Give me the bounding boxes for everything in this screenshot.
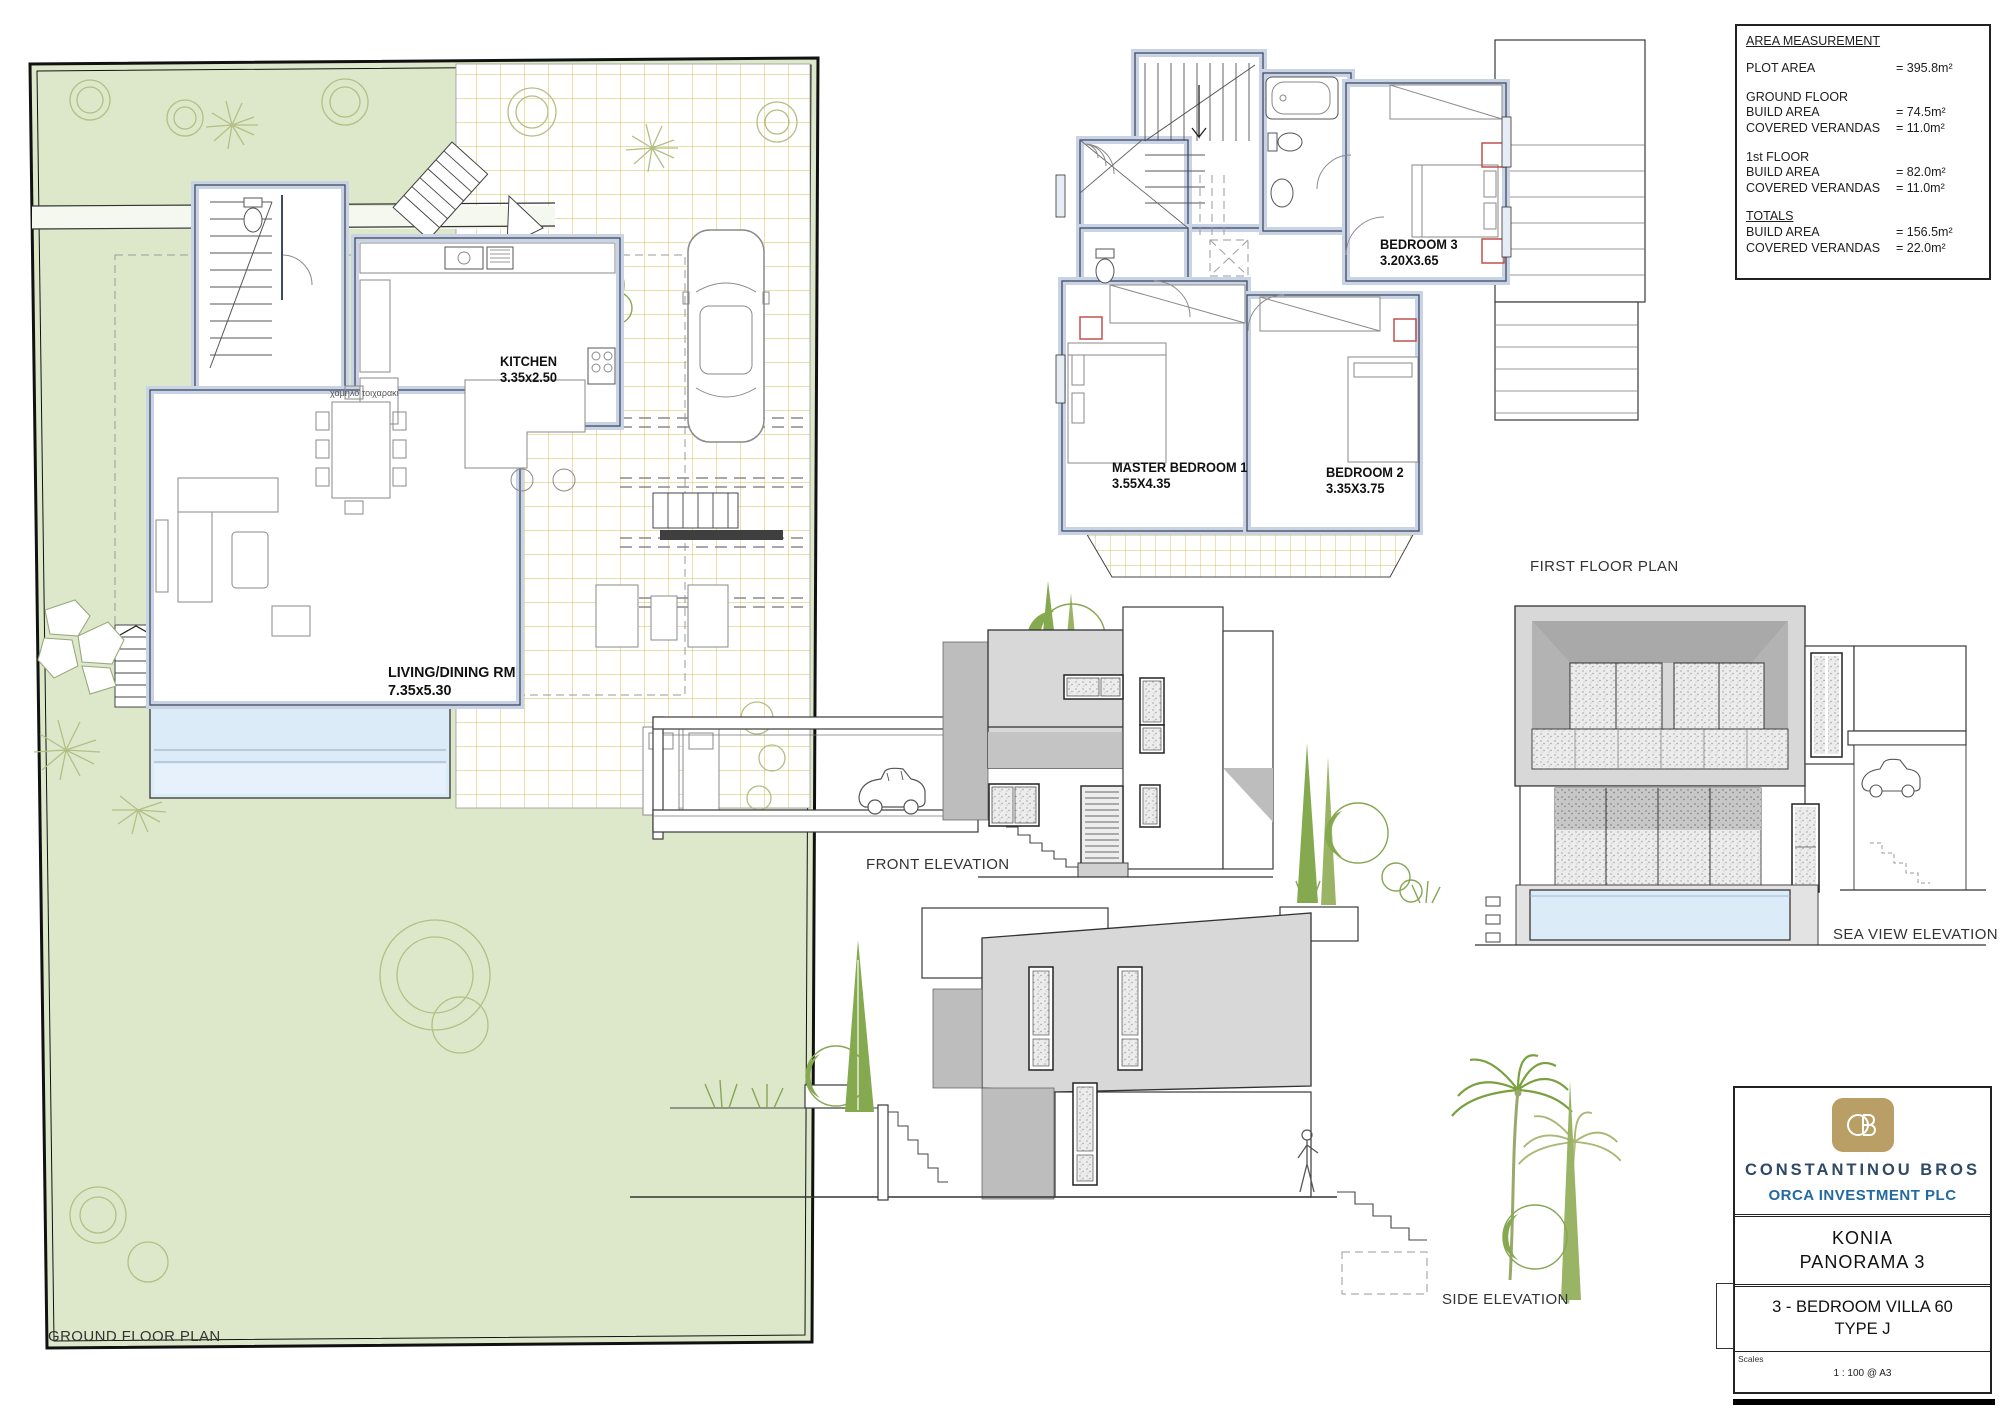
project-line2: PANORAMA 3: [1735, 1250, 1990, 1274]
title-block-tab: [1716, 1283, 1734, 1349]
ground-floor-plan-title: GROUND FLOOR PLAN: [48, 1328, 221, 1345]
side-elevation-title: SIDE ELEVATION: [1442, 1291, 1569, 1308]
sea-lower-floor: [1520, 786, 1819, 894]
plot-area-label: PLOT AREA: [1746, 61, 1896, 77]
drawing-line1: 3 - BEDROOM VILLA 60: [1735, 1296, 1990, 1318]
master-bedroom-dims: 3.55X4.35: [1112, 476, 1247, 492]
bedroom3-dims: 3.20X3.65: [1380, 253, 1458, 269]
drawing-title: 3 - BEDROOM VILLA 60 TYPE J: [1735, 1287, 1990, 1353]
living-dining-label: LIVING/DINING RM 7.35x5.30: [388, 664, 515, 699]
palm-trees: [1452, 1055, 1621, 1303]
project-name: KONIA PANORAMA 3: [1735, 1217, 1990, 1287]
area-row-plot: PLOT AREA = 395.8m²: [1746, 61, 1980, 77]
totals-heading: TOTALS: [1746, 209, 1896, 225]
front-elevation-title: FRONT ELEVATION: [866, 856, 1010, 873]
company-name: CONSTANTINOU BROS: [1741, 1161, 1984, 1180]
roof-strips: [1495, 40, 1645, 420]
1f-build-area-value: = 82.0m²: [1896, 165, 1980, 181]
living-dims: 7.35x5.30: [388, 682, 515, 700]
plc-name: ORCA INVESTMENT PLC: [1741, 1187, 1984, 1204]
total-build-area-value: = 156.5m²: [1896, 225, 1980, 241]
bedroom2-name: BEDROOM 2: [1326, 465, 1404, 481]
side-plants: [705, 940, 874, 1112]
gf-build-area-value: = 74.5m²: [1896, 105, 1980, 121]
area-row-total-build: BUILD AREA = 156.5m²: [1746, 225, 1980, 241]
1f-build-area-label: BUILD AREA: [1746, 165, 1896, 181]
sea-annex: [1805, 646, 1854, 764]
total-build-area-label: BUILD AREA: [1746, 225, 1896, 241]
scale-value: 1 : 100 @ A3: [1735, 1352, 1990, 1379]
bedroom3-name: BEDROOM 3: [1380, 237, 1458, 253]
car-side-icon: [859, 768, 925, 814]
total-verandas-value: = 22.0m²: [1896, 241, 1980, 257]
plot-area-value: = 395.8m²: [1896, 61, 1980, 77]
scales-label: Scales: [1738, 1354, 1764, 1364]
sea-garage: [1840, 646, 1986, 890]
gf-build-area-label: BUILD AREA: [1746, 105, 1896, 121]
area-row-gf-heading: GROUND FLOOR: [1746, 90, 1980, 106]
drawing-sheet: GROUND FLOOR PLAN FIRST FLOOR PLAN FRONT…: [0, 0, 2000, 1414]
title-block-branding: CONSTANTINOU BROS ORCA INVESTMENT PLC: [1735, 1088, 1990, 1217]
bedroom2-dims: 3.35X3.75: [1326, 481, 1404, 497]
project-line1: KONIA: [1735, 1226, 1990, 1250]
gf-verandas-label: COVERED VERANDAS: [1746, 121, 1896, 137]
ground-floor-heading: GROUND FLOOR: [1746, 90, 1896, 106]
cb-monogram-icon: [1845, 1109, 1881, 1141]
1f-verandas-label: COVERED VERANDAS: [1746, 181, 1896, 197]
area-row-totals-heading: TOTALS: [1746, 209, 1980, 225]
side-masses: [922, 908, 1311, 1199]
title-block: CONSTANTINOU BROS ORCA INVESTMENT PLC KO…: [1733, 1086, 1992, 1394]
ff-veranda-tiles: [1085, 531, 1415, 577]
carport: [653, 717, 993, 839]
kitchen-dims: 3.35x2.50: [500, 370, 557, 386]
first-floor-plan: [1050, 25, 1710, 595]
area-row-1f-build: BUILD AREA = 82.0m²: [1746, 165, 1980, 181]
constantinou-bros-logo-icon: [1832, 1098, 1894, 1152]
1f-verandas-value: = 11.0m²: [1896, 181, 1980, 197]
area-row-total-verandas: COVERED VERANDAS = 22.0m²: [1746, 241, 1980, 257]
area-row-gf-verandas: COVERED VERANDAS = 11.0m²: [1746, 121, 1980, 137]
area-measurement-box: AREA MEASUREMENT PLOT AREA = 395.8m² GRO…: [1735, 24, 1991, 280]
drawing-line2: TYPE J: [1735, 1318, 1990, 1340]
sea-upper-floor: [1515, 606, 1805, 786]
gf-verandas-value: = 11.0m²: [1896, 121, 1980, 137]
side-elevation: [630, 880, 1630, 1340]
bedroom3-label: BEDROOM 3 3.20X3.65: [1380, 237, 1458, 269]
area-row-1f-heading: 1st FLOOR: [1746, 150, 1980, 166]
total-verandas-label: COVERED VERANDAS: [1746, 241, 1896, 257]
master-bedroom-label: MASTER BEDROOM 1 3.55X4.35: [1112, 460, 1247, 492]
kitchen-label: KITCHEN 3.35x2.50: [500, 354, 557, 386]
sea-view-elevation-title: SEA VIEW ELEVATION: [1833, 926, 1998, 943]
area-measurement-title: AREA MEASUREMENT: [1746, 34, 1980, 48]
living-name: LIVING/DINING RM: [388, 664, 515, 682]
sheet-bottom-bar: [1733, 1399, 1995, 1405]
louver-door: [1081, 786, 1123, 870]
master-bedroom-name: MASTER BEDROOM 1: [1112, 460, 1247, 476]
first-floor-heading: 1st FLOOR: [1746, 150, 1896, 166]
area-row-gf-build: BUILD AREA = 74.5m²: [1746, 105, 1980, 121]
scales-section: Scales 1 : 100 @ A3: [1735, 1352, 1990, 1392]
car-icon: [683, 230, 769, 442]
greek-note: χαμηλο τοιχαρακι: [330, 388, 399, 398]
bedroom2-label: BEDROOM 2 3.35X3.75: [1326, 465, 1404, 497]
area-row-1f-verandas: COVERED VERANDAS = 11.0m²: [1746, 181, 1980, 197]
first-floor-plan-title: FIRST FLOOR PLAN: [1530, 558, 1679, 575]
kitchen-name: KITCHEN: [500, 354, 557, 370]
